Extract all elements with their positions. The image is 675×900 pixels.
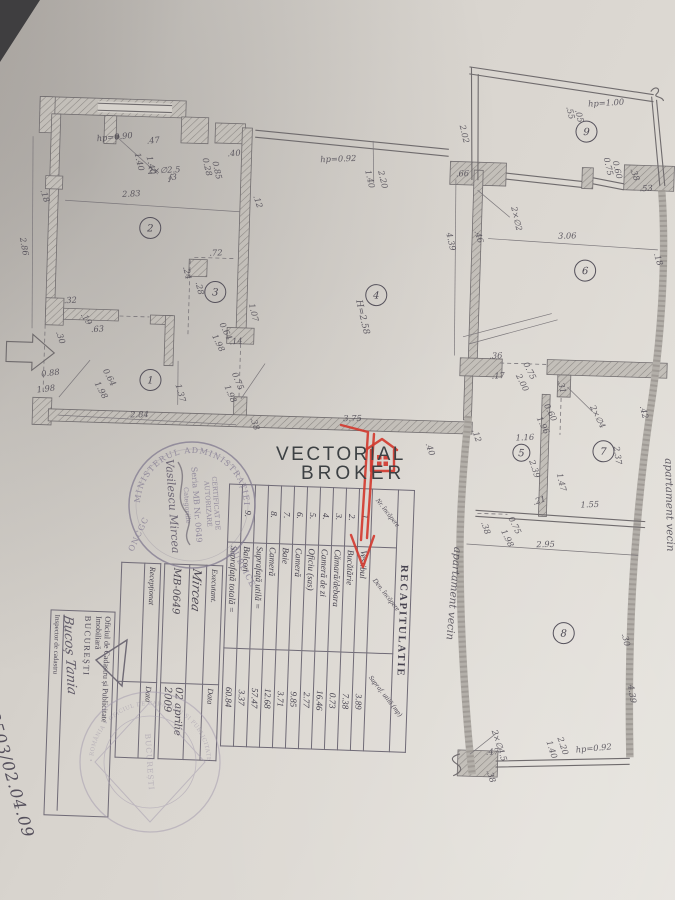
table-cell: 2. bbox=[345, 488, 360, 546]
table-cell: 6. bbox=[293, 486, 308, 544]
room-number: 6 bbox=[582, 266, 589, 277]
dim-label: .47 bbox=[146, 134, 161, 145]
dim-label: hp=0.92 bbox=[575, 741, 612, 754]
dim-label: 1.07 bbox=[247, 302, 261, 323]
dim-label: .63 bbox=[91, 323, 105, 334]
table-cell bbox=[228, 484, 243, 542]
recapitulatie-table: RECAPITULATIE Nr. încăpere Den. încăpere… bbox=[220, 484, 415, 753]
data-label: Data bbox=[200, 685, 219, 761]
dim-label: 2.02 bbox=[457, 123, 471, 144]
dim-label: .30 bbox=[54, 330, 68, 346]
dim-label: .40 bbox=[227, 148, 241, 159]
col-header-nr: Nr. încăpere bbox=[370, 489, 398, 548]
dim-label: 3.06 bbox=[558, 230, 577, 240]
table-cell bbox=[254, 485, 269, 543]
data-label-2: Data bbox=[138, 682, 157, 758]
room-number: 9 bbox=[583, 127, 590, 138]
dim-label: 0.60 bbox=[611, 160, 625, 181]
dim-label: 2×∅4 bbox=[588, 402, 608, 430]
oficiul-box: Oficiul de Cadastru și Publicitate Imobi… bbox=[43, 609, 115, 817]
dim-label: .47 bbox=[486, 746, 500, 757]
col-header-den: Den. încăpere bbox=[367, 547, 397, 654]
room-number: 7 bbox=[600, 447, 607, 458]
dim-label: H=2.58 bbox=[353, 298, 371, 336]
dim-label: hp=1.00 bbox=[588, 97, 625, 109]
dim-label: apartament vecin bbox=[662, 458, 675, 552]
executant-date: 02 aprilie 2009 bbox=[158, 683, 186, 759]
dim-label: 0.85 bbox=[210, 160, 224, 180]
dim-label: .38 bbox=[479, 520, 493, 536]
scanned-floor-plan-photo: .47∮3hp=0.901.401.402×∅2.50.280.85.402.8… bbox=[0, 0, 675, 900]
executant-table: Executant. Data Mircea MB-0649 02 aprili… bbox=[157, 563, 223, 761]
receptionat-table: Recepționat Data bbox=[114, 562, 161, 759]
dim-label: .12 bbox=[470, 428, 484, 444]
table-cell: 7. bbox=[280, 486, 295, 544]
rotated-document-block: RECAPITULATIE Nr. încăpere Den. încăpere… bbox=[45, 477, 415, 772]
watermark-line2: BROKER bbox=[301, 463, 405, 485]
dim-label: hp=0.92 bbox=[320, 153, 356, 164]
dim-label: 2.84 bbox=[129, 409, 149, 419]
entrance-arrow-icon bbox=[6, 333, 55, 370]
dim-label: 0.88 bbox=[41, 367, 60, 379]
dim-label: .72 bbox=[209, 247, 223, 257]
empty-cell bbox=[118, 562, 145, 682]
dim-label: .14 bbox=[229, 336, 243, 347]
dim-label: .42 bbox=[638, 405, 651, 420]
dim-label: 1.40 bbox=[133, 152, 147, 173]
room-number: 4 bbox=[372, 290, 380, 301]
dim-label: 2.95 bbox=[535, 539, 555, 549]
table-cell: 3. bbox=[332, 488, 347, 546]
dim-label: 2×∅2 bbox=[509, 204, 525, 231]
col-header-supr: Supraf. utilă (mp) bbox=[363, 653, 392, 752]
dim-label: .36 bbox=[489, 350, 503, 360]
table-cell: 4. bbox=[319, 487, 334, 545]
dim-label: 2.20 bbox=[376, 168, 390, 190]
table-cell: 1. bbox=[357, 489, 372, 547]
dim-label: 1.55 bbox=[580, 499, 599, 510]
table-cell: 9. bbox=[241, 484, 256, 542]
dim-label: 2×∅2.5 bbox=[147, 164, 181, 176]
room-number: 5 bbox=[518, 448, 525, 459]
dim-label: .12 bbox=[251, 194, 265, 210]
room-number: 1 bbox=[147, 375, 154, 386]
dim-label: .66 bbox=[456, 168, 470, 178]
room-number: 2 bbox=[146, 223, 154, 234]
dim-label: 1.40 bbox=[363, 169, 377, 190]
dim-label: hp=0.90 bbox=[96, 130, 134, 143]
dim-label: 4.39 bbox=[444, 230, 458, 252]
dim-label: 1.37 bbox=[173, 383, 188, 404]
empty-cell bbox=[115, 682, 141, 758]
dim-label: .32 bbox=[63, 295, 77, 306]
dim-label: 3.75 bbox=[343, 413, 362, 423]
dim-label: 2.86 bbox=[18, 235, 31, 256]
room-number: 8 bbox=[560, 629, 567, 640]
room-number: 3 bbox=[212, 287, 219, 298]
dim-label: 2.83 bbox=[121, 188, 141, 199]
dim-label: 1.98 bbox=[36, 383, 55, 395]
dim-label: 1.47 bbox=[555, 472, 569, 493]
table-cell: 5. bbox=[306, 487, 321, 545]
dim-label: 1.16 bbox=[515, 432, 534, 443]
dim-label: .53 bbox=[639, 183, 653, 193]
table-cell: 8. bbox=[267, 485, 282, 543]
dim-label: .17 bbox=[491, 370, 505, 381]
empty-cell bbox=[183, 684, 203, 760]
dim-label: .24 bbox=[181, 265, 194, 280]
dim-label: .40 bbox=[424, 441, 438, 457]
